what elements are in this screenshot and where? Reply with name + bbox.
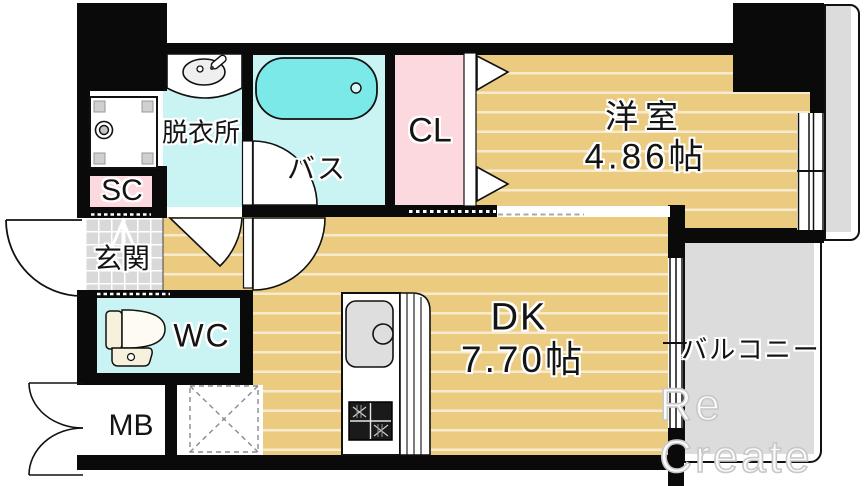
dressing-room-label: 脱衣所 bbox=[162, 113, 240, 150]
watermark: Re Create bbox=[659, 379, 812, 483]
entrance-door-swing-icon bbox=[6, 220, 82, 296]
bath-label: バス bbox=[287, 147, 347, 187]
gas-stove-icon bbox=[349, 402, 392, 440]
hall-door-swing-icon bbox=[253, 218, 325, 290]
hall-door-leaf-icon bbox=[244, 218, 253, 288]
dressing-door-swing-icon bbox=[170, 218, 242, 266]
toilet-icon bbox=[106, 310, 165, 366]
closet-label: CL bbox=[408, 112, 451, 151]
refrigerator-space-icon bbox=[190, 386, 258, 452]
meter-box-label: MB bbox=[109, 409, 154, 443]
washing-machine-pan-icon bbox=[90, 97, 157, 168]
bifold-closet-door-icon bbox=[464, 53, 508, 206]
shoe-closet-label: SC bbox=[101, 174, 143, 208]
bathtub-icon bbox=[256, 58, 377, 119]
washroom-sink-icon bbox=[167, 54, 242, 98]
western-room-window-icon bbox=[797, 113, 825, 230]
kitchen-sink-icon bbox=[346, 301, 393, 367]
meter-box-doors-icon bbox=[29, 383, 83, 475]
floor-plan: 脱衣所 バス CL 洋室 4.86帖 SC 玄関 WC MB DK 7.70帖 … bbox=[0, 0, 866, 486]
dk-size-label: 7.70帖 bbox=[461, 329, 585, 383]
western-room-size-label: 4.86帖 bbox=[584, 129, 707, 180]
entrance-label: 玄関 bbox=[94, 237, 150, 277]
balcony-label: バルコニー bbox=[681, 330, 820, 367]
wc-label: WC bbox=[173, 318, 230, 355]
bath-door-leaf-icon bbox=[243, 141, 253, 205]
